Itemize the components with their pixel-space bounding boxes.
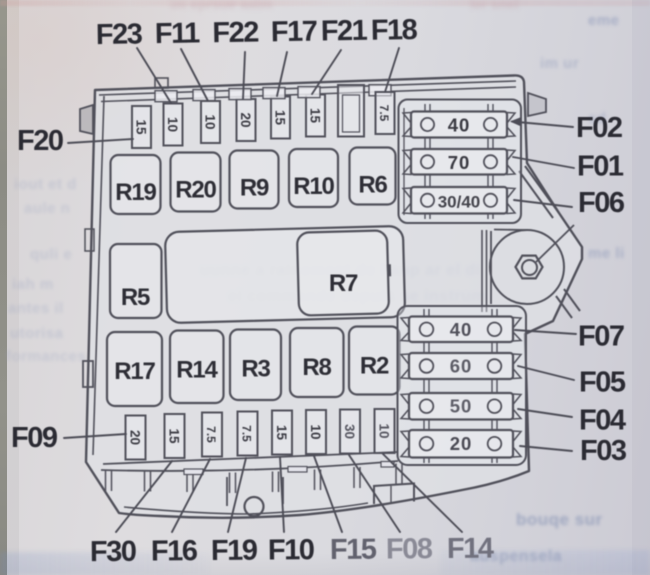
svg-text:F09: F09: [11, 422, 58, 454]
svg-text:7.5: 7.5: [240, 425, 254, 442]
svg-text:F18: F18: [371, 14, 418, 47]
svg-text:10: 10: [308, 424, 323, 439]
svg-text:R5: R5: [121, 284, 150, 311]
svg-text:F22: F22: [212, 17, 258, 50]
svg-text:F08: F08: [386, 533, 433, 565]
svg-text:F04: F04: [579, 405, 626, 437]
svg-text:10: 10: [377, 423, 392, 438]
svg-text:R2: R2: [360, 353, 389, 380]
svg-text:20: 20: [238, 112, 253, 127]
svg-text:F05: F05: [579, 367, 626, 399]
svg-text:15: 15: [308, 108, 323, 124]
svg-text:F15: F15: [330, 534, 377, 566]
svg-text:F14: F14: [447, 533, 494, 565]
svg-text:R3: R3: [241, 356, 270, 383]
svg-text:F06: F06: [578, 187, 625, 219]
svg-text:F30: F30: [90, 536, 136, 568]
svg-text:F23: F23: [96, 18, 143, 51]
svg-text:R17: R17: [114, 358, 155, 385]
svg-text:F11: F11: [155, 17, 201, 50]
svg-text:15: 15: [274, 425, 289, 441]
svg-text:R10: R10: [293, 173, 334, 200]
svg-text:70: 70: [448, 152, 471, 173]
svg-text:7.5: 7.5: [204, 426, 218, 443]
svg-text:R8: R8: [302, 354, 331, 381]
svg-text:R6: R6: [358, 172, 387, 199]
svg-text:15: 15: [273, 110, 288, 126]
svg-text:20: 20: [450, 433, 473, 454]
svg-text:R14: R14: [176, 357, 218, 384]
svg-text:F03: F03: [580, 435, 627, 467]
svg-text:F07: F07: [578, 321, 624, 353]
svg-text:R20: R20: [175, 177, 216, 204]
svg-text:50: 50: [450, 396, 473, 417]
svg-text:10: 10: [203, 114, 218, 129]
svg-text:F02: F02: [576, 112, 622, 144]
svg-text:40: 40: [448, 115, 471, 136]
svg-text:R9: R9: [240, 175, 269, 202]
svg-text:F16: F16: [151, 535, 198, 567]
svg-text:15: 15: [134, 119, 149, 135]
svg-text:30/40: 30/40: [438, 192, 481, 211]
svg-text:60: 60: [450, 356, 473, 377]
svg-text:F20: F20: [17, 125, 63, 157]
svg-text:F17: F17: [271, 16, 317, 49]
svg-text:R19: R19: [115, 179, 156, 206]
svg-text:F01: F01: [577, 151, 624, 183]
svg-text:30: 30: [342, 424, 357, 439]
svg-text:15: 15: [167, 428, 182, 444]
svg-text:20: 20: [128, 430, 143, 445]
svg-text:F10: F10: [268, 534, 314, 566]
svg-text:F21: F21: [321, 15, 368, 48]
svg-text:F19: F19: [211, 535, 258, 567]
svg-text:7.5: 7.5: [377, 105, 391, 122]
svg-text:10: 10: [165, 117, 180, 132]
svg-text:R7: R7: [329, 270, 358, 297]
svg-text:40: 40: [450, 319, 473, 340]
